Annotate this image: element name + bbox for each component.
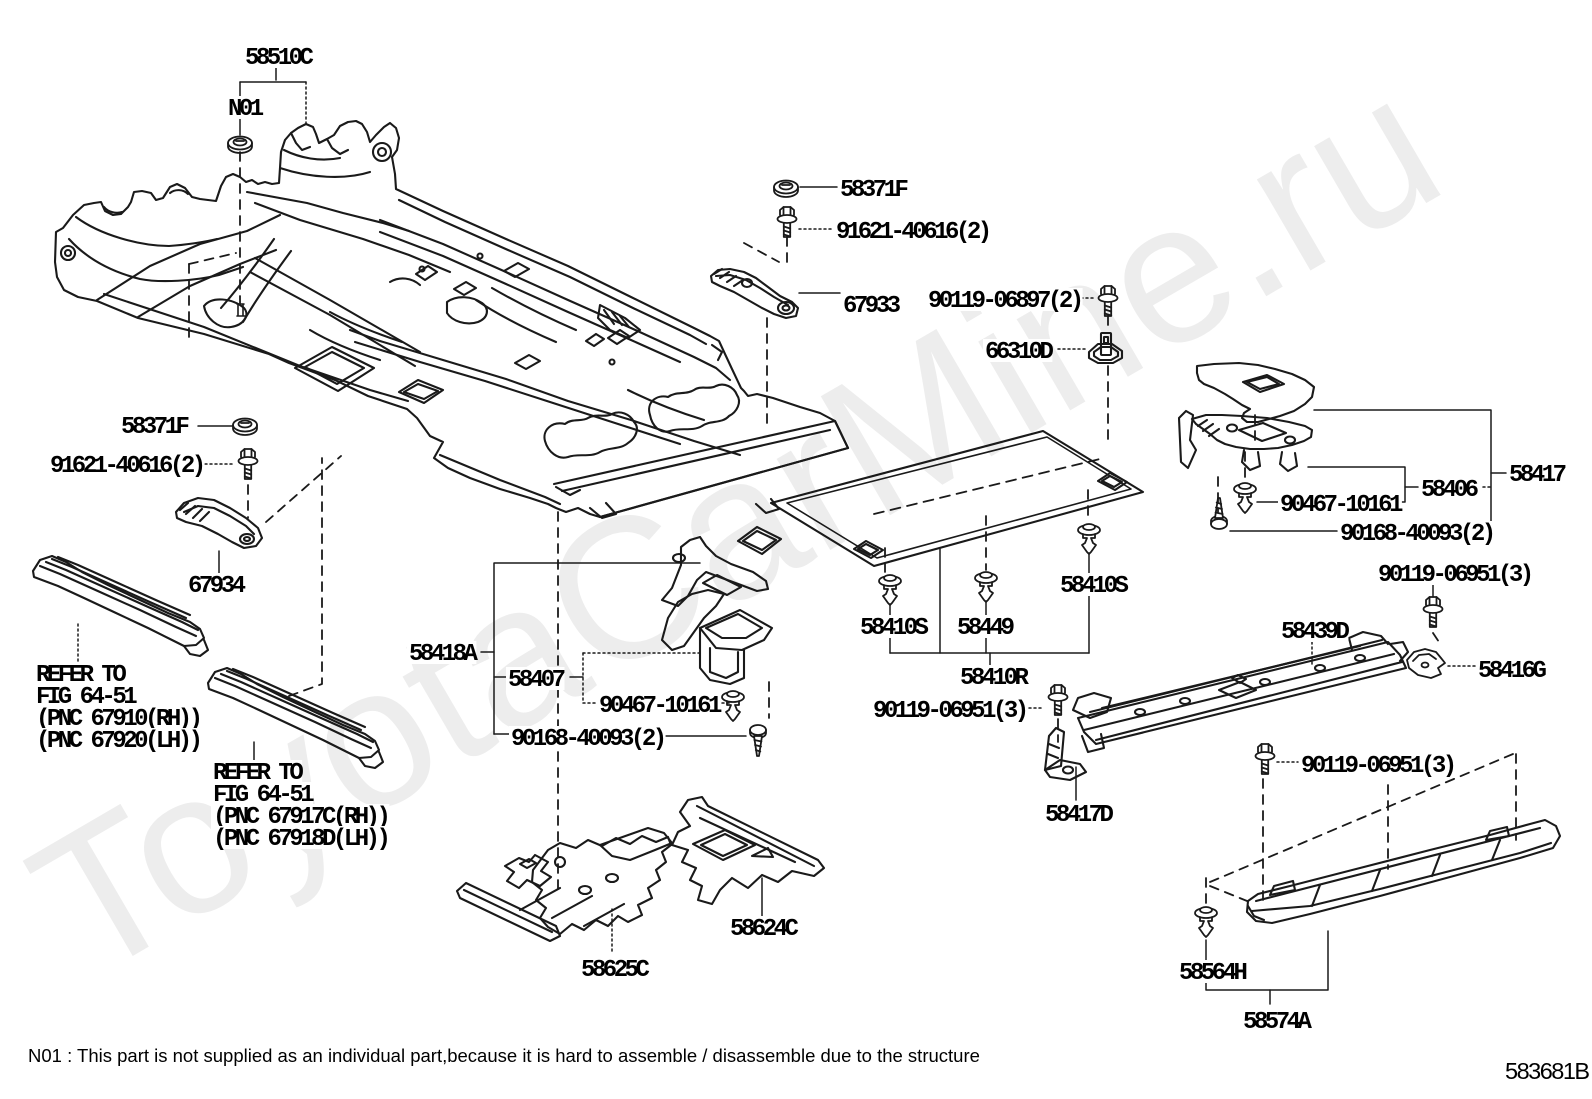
svg-text:90467-10161: 90467-10161 — [599, 693, 722, 720]
svg-text:90119-06951(3): 90119-06951(3) — [1301, 753, 1454, 780]
svg-text:58624C: 58624C — [730, 916, 799, 943]
svg-text:90467-10161: 90467-10161 — [1280, 492, 1403, 519]
svg-text:58564H: 58564H — [1179, 960, 1247, 987]
svg-text:58417D: 58417D — [1045, 802, 1114, 829]
svg-text:90168-40093(2): 90168-40093(2) — [511, 726, 664, 753]
svg-text:(PNC 67920(LH)): (PNC 67920(LH)) — [36, 728, 200, 755]
svg-text:(PNC 67918D(LH)): (PNC 67918D(LH)) — [213, 826, 388, 853]
svg-text:58439D: 58439D — [1281, 619, 1350, 646]
svg-text:91621-40616(2): 91621-40616(2) — [50, 453, 203, 480]
svg-text:58625C: 58625C — [581, 957, 650, 984]
svg-text:N01: N01 — [228, 96, 264, 123]
svg-text:91621-40616(2): 91621-40616(2) — [836, 219, 989, 246]
svg-text:58406: 58406 — [1421, 477, 1479, 504]
svg-text:67934: 67934 — [188, 573, 246, 600]
svg-text:66310D: 66310D — [985, 339, 1054, 366]
svg-text:58410S: 58410S — [860, 615, 929, 642]
svg-text:N01 : This part is not supplie: N01 : This part is not supplied as an in… — [28, 1045, 980, 1066]
svg-text:58574A: 58574A — [1243, 1009, 1313, 1036]
svg-text:ToyotaCarMine.ru: ToyotaCarMine.ru — [0, 32, 1474, 1019]
svg-text:58418A: 58418A — [409, 641, 479, 668]
svg-text:90168-40093(2): 90168-40093(2) — [1340, 521, 1493, 548]
svg-text:58417: 58417 — [1509, 462, 1566, 489]
svg-text:67933: 67933 — [843, 293, 901, 320]
svg-text:58410R: 58410R — [960, 665, 1030, 692]
svg-text:58371F: 58371F — [121, 414, 189, 441]
svg-text:90119-06951(3): 90119-06951(3) — [873, 698, 1026, 725]
svg-text:58510C: 58510C — [245, 45, 314, 72]
svg-text:58371F: 58371F — [840, 177, 908, 204]
svg-text:58416G: 58416G — [1478, 658, 1547, 685]
svg-text:90119-06897(2): 90119-06897(2) — [928, 288, 1081, 315]
svg-text:58410S: 58410S — [1060, 573, 1129, 600]
svg-text:58407: 58407 — [508, 667, 565, 694]
svg-text:90119-06951(3): 90119-06951(3) — [1378, 562, 1531, 589]
svg-text:58449: 58449 — [957, 615, 1014, 642]
svg-text:583681B: 583681B — [1505, 1058, 1589, 1084]
